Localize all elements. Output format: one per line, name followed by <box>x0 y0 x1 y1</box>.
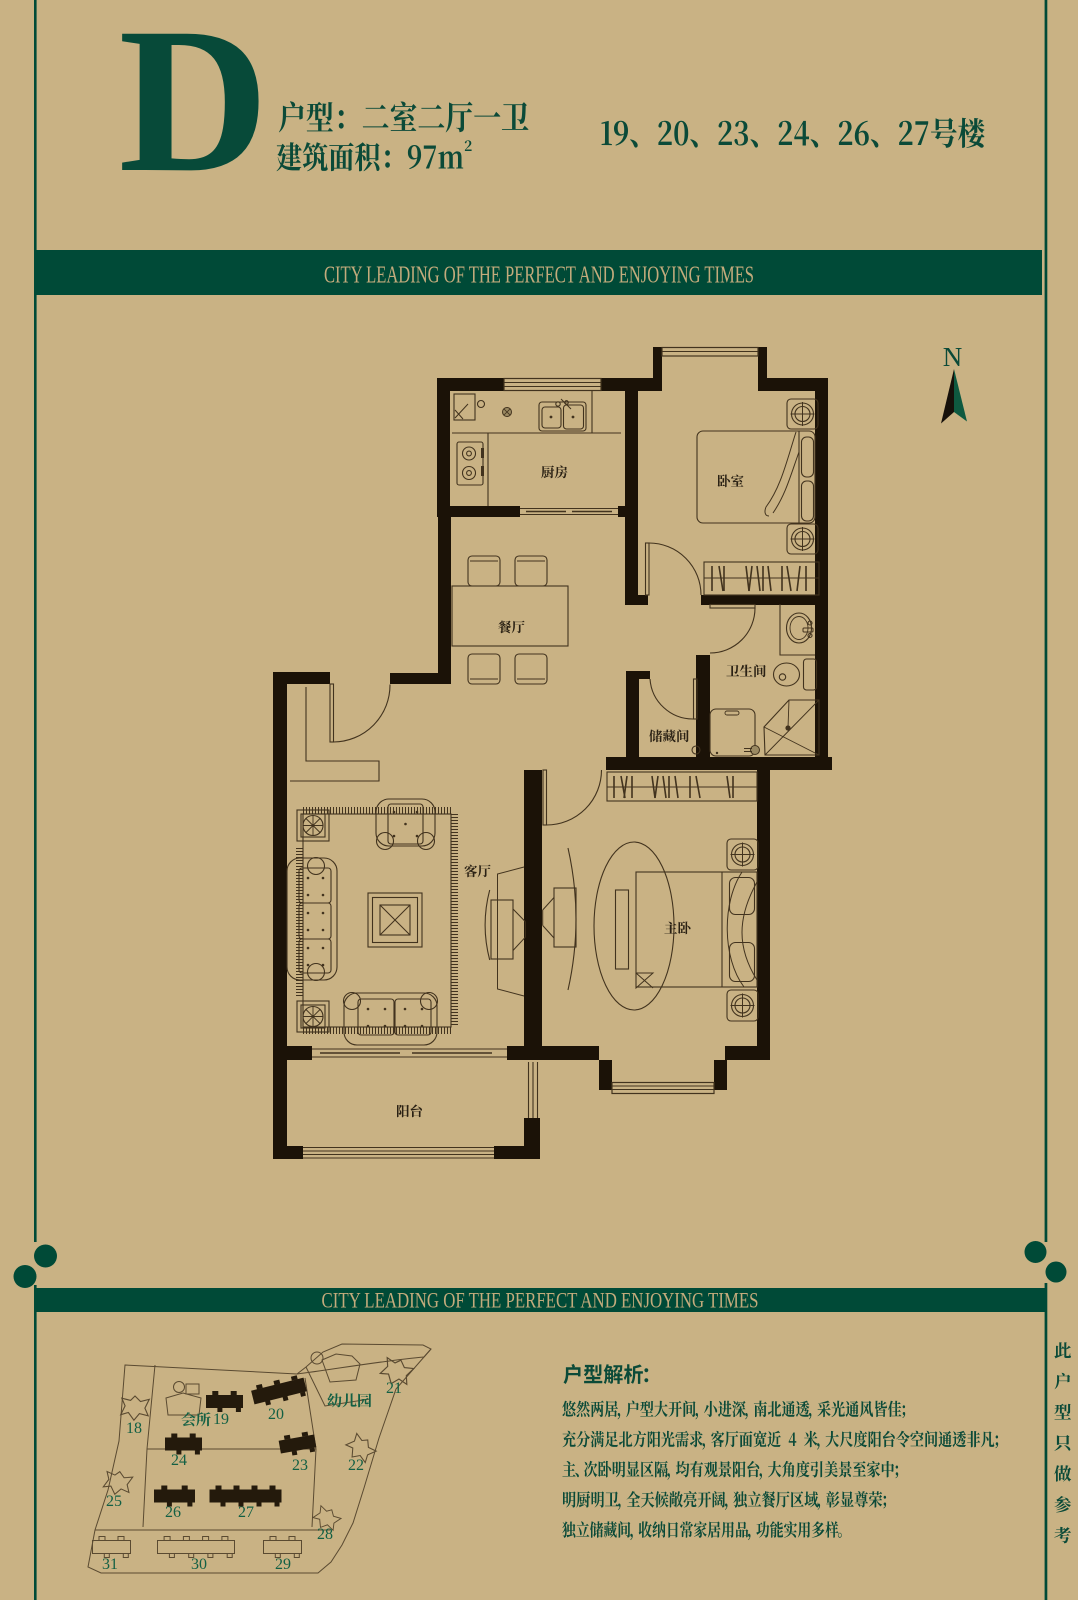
svg-text:D: D <box>119 0 269 215</box>
svg-text:18: 18 <box>126 1420 142 1437</box>
svg-text:21: 21 <box>386 1380 402 1397</box>
svg-text:29: 29 <box>275 1556 291 1573</box>
svg-text:22: 22 <box>348 1457 364 1474</box>
svg-text:27: 27 <box>238 1504 254 1521</box>
svg-text:23: 23 <box>292 1457 308 1474</box>
svg-text:26: 26 <box>165 1504 181 1521</box>
svg-text:19: 19 <box>213 1411 229 1428</box>
svg-text:N: N <box>943 342 963 372</box>
svg-text:CITY LEADING OF THE PERFECT AN: CITY LEADING OF THE PERFECT AND ENJOYING… <box>324 263 754 289</box>
svg-text:30: 30 <box>191 1556 207 1573</box>
svg-text:31: 31 <box>102 1556 118 1573</box>
svg-text:28: 28 <box>317 1526 333 1543</box>
svg-text:CITY LEADING OF THE PERFECT AN: CITY LEADING OF THE PERFECT AND ENJOYING… <box>322 1288 759 1313</box>
svg-text:20: 20 <box>268 1406 284 1423</box>
svg-text:25: 25 <box>106 1493 122 1510</box>
svg-text:24: 24 <box>171 1452 187 1469</box>
